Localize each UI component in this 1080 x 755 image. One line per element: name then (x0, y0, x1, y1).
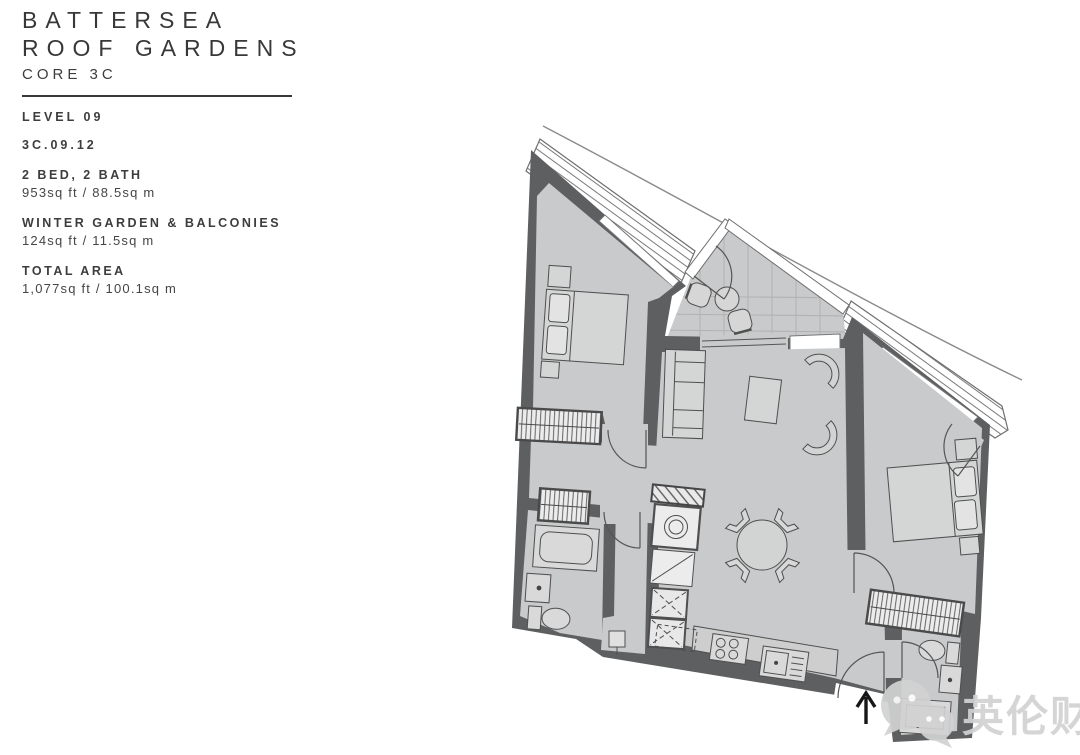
bathroom1-door-opening (600, 498, 644, 524)
utility-unit (609, 631, 625, 647)
pillow (548, 293, 570, 322)
sofa (662, 349, 705, 438)
pillow (953, 466, 976, 497)
coffee-table (744, 376, 781, 424)
floorplan-drawing: 英伦财富 (0, 0, 1080, 755)
oven-sink-unit (759, 646, 809, 682)
pillow (546, 325, 568, 354)
winter-garden (660, 219, 852, 345)
bedside-table (548, 265, 571, 287)
ensuite-door-opening (882, 640, 904, 678)
wardrobe-hall (538, 488, 590, 523)
washer-closet (651, 504, 700, 550)
bedside-table (540, 361, 559, 378)
bedside-table (959, 536, 979, 555)
bathtub (533, 525, 600, 571)
bedside-table (955, 438, 978, 460)
bedroom2-door-opening (845, 550, 868, 592)
hob (709, 634, 748, 665)
toilet-cistern (527, 606, 542, 630)
dining-table (737, 520, 787, 570)
watermark-text: 英伦财富 (962, 693, 1080, 740)
wardrobe-bedroom1 (516, 408, 602, 444)
storage-units (648, 588, 688, 649)
floorplan-sheet: BATTERSEA ROOF GARDENS CORE 3C LEVEL 09 … (0, 0, 1080, 755)
pillow (954, 500, 977, 531)
toilet-cistern (946, 642, 960, 664)
bistro-table (715, 287, 739, 311)
